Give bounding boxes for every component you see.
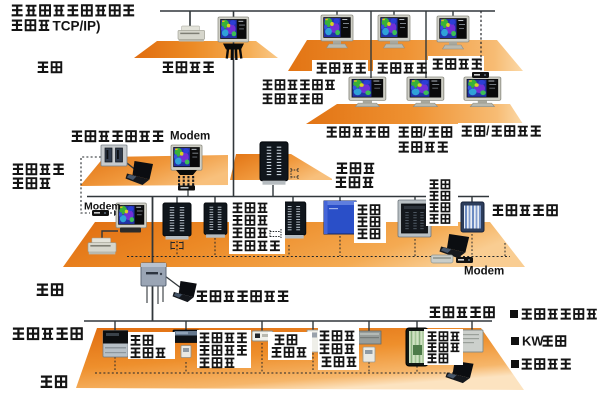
svg-text:/: /	[486, 124, 490, 138]
svg-text:Modem: Modem	[464, 265, 504, 277]
svg-text:TCP/IP): TCP/IP)	[53, 19, 101, 34]
svg-text:/: /	[423, 125, 427, 139]
svg-text:Modem: Modem	[170, 130, 210, 142]
svg-text:KW: KW	[522, 334, 544, 349]
svg-text:Modem: Modem	[84, 201, 121, 213]
